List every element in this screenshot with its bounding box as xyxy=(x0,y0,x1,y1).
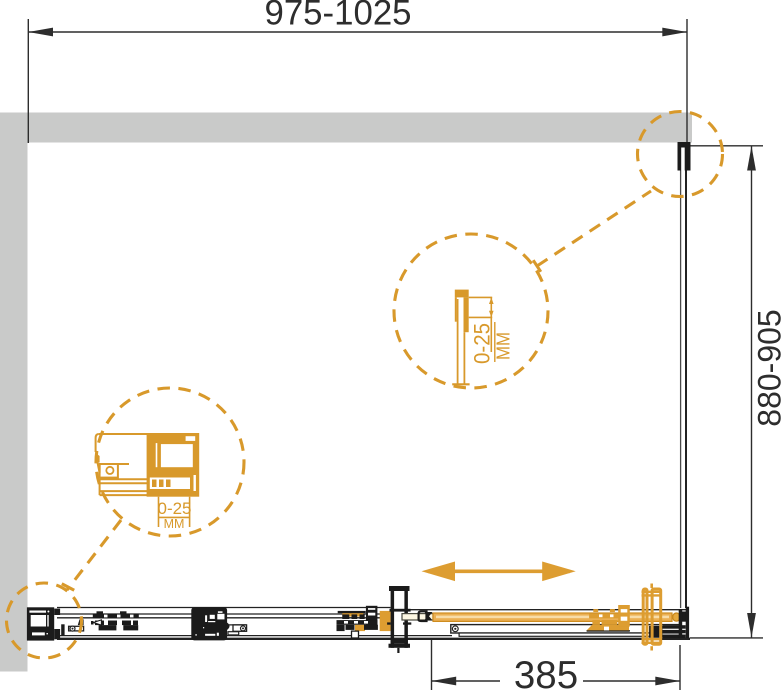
svg-text:385: 385 xyxy=(514,654,578,690)
svg-text:0-25: 0-25 xyxy=(157,499,191,518)
svg-text:0-25: 0-25 xyxy=(470,323,495,364)
svg-text:MM: MM xyxy=(493,332,514,360)
svg-text:MM: MM xyxy=(164,517,185,531)
svg-text:975-1025: 975-1025 xyxy=(264,0,411,33)
svg-text:880-905: 880-905 xyxy=(752,309,782,426)
